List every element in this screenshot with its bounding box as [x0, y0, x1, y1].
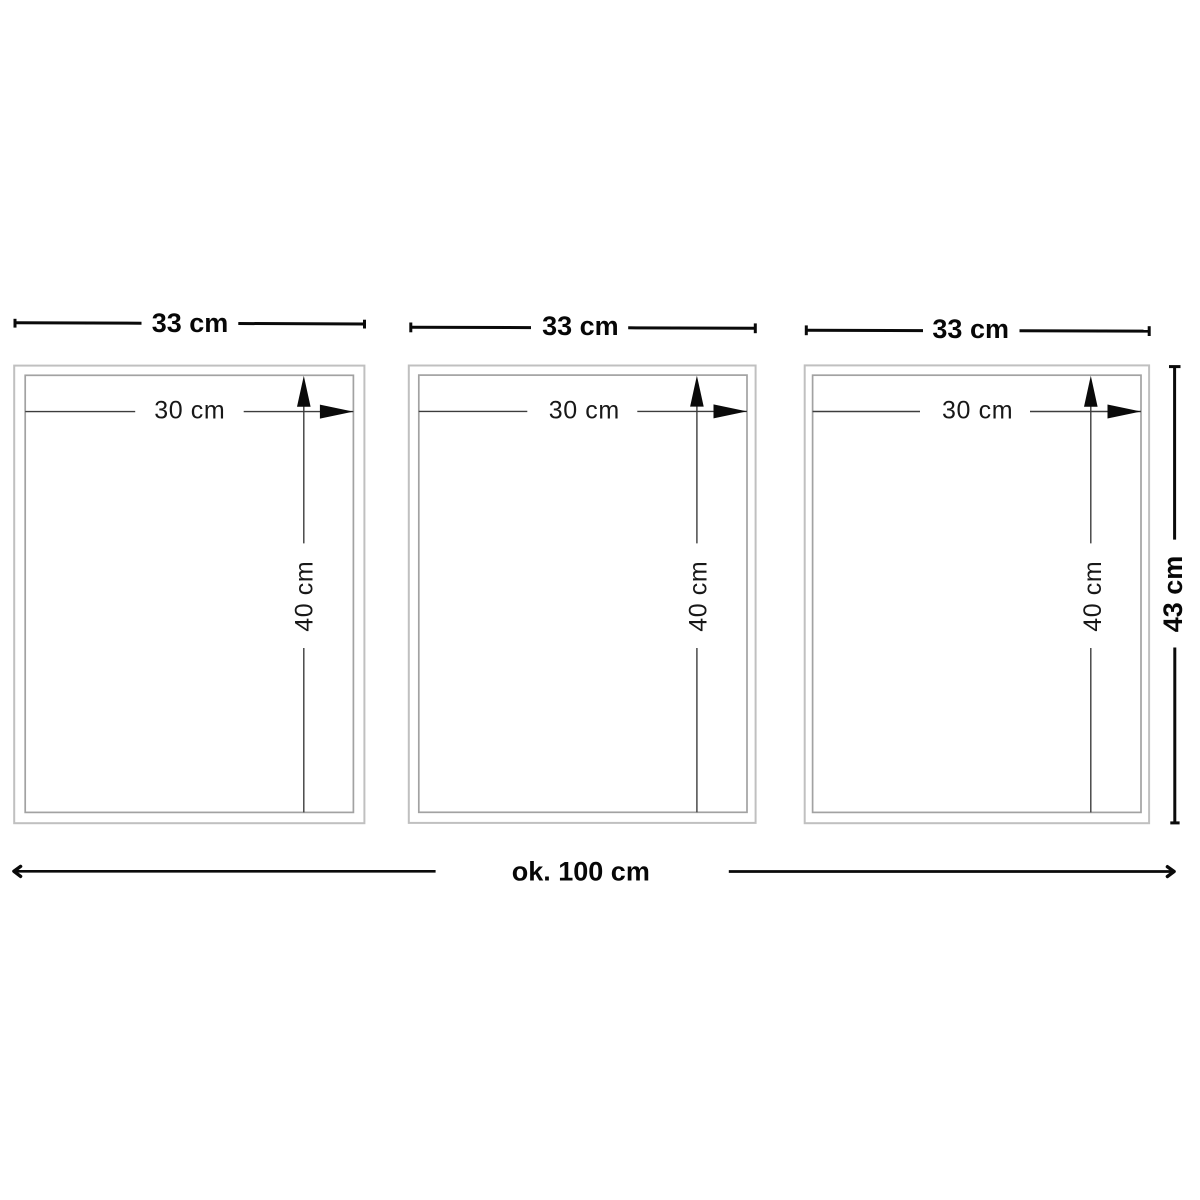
- svg-text:33 cm: 33 cm: [932, 314, 1009, 344]
- svg-text:30 cm: 30 cm: [942, 397, 1013, 425]
- svg-text:33 cm: 33 cm: [542, 311, 619, 341]
- svg-text:40 cm: 40 cm: [1079, 561, 1107, 632]
- svg-text:ok. 100 cm: ok. 100 cm: [512, 857, 650, 887]
- svg-text:30 cm: 30 cm: [154, 397, 225, 425]
- svg-text:33 cm: 33 cm: [152, 308, 229, 338]
- svg-text:40 cm: 40 cm: [291, 561, 319, 632]
- svg-text:43 cm: 43 cm: [1158, 556, 1188, 633]
- svg-text:40 cm: 40 cm: [684, 561, 712, 632]
- svg-text:30 cm: 30 cm: [549, 397, 620, 425]
